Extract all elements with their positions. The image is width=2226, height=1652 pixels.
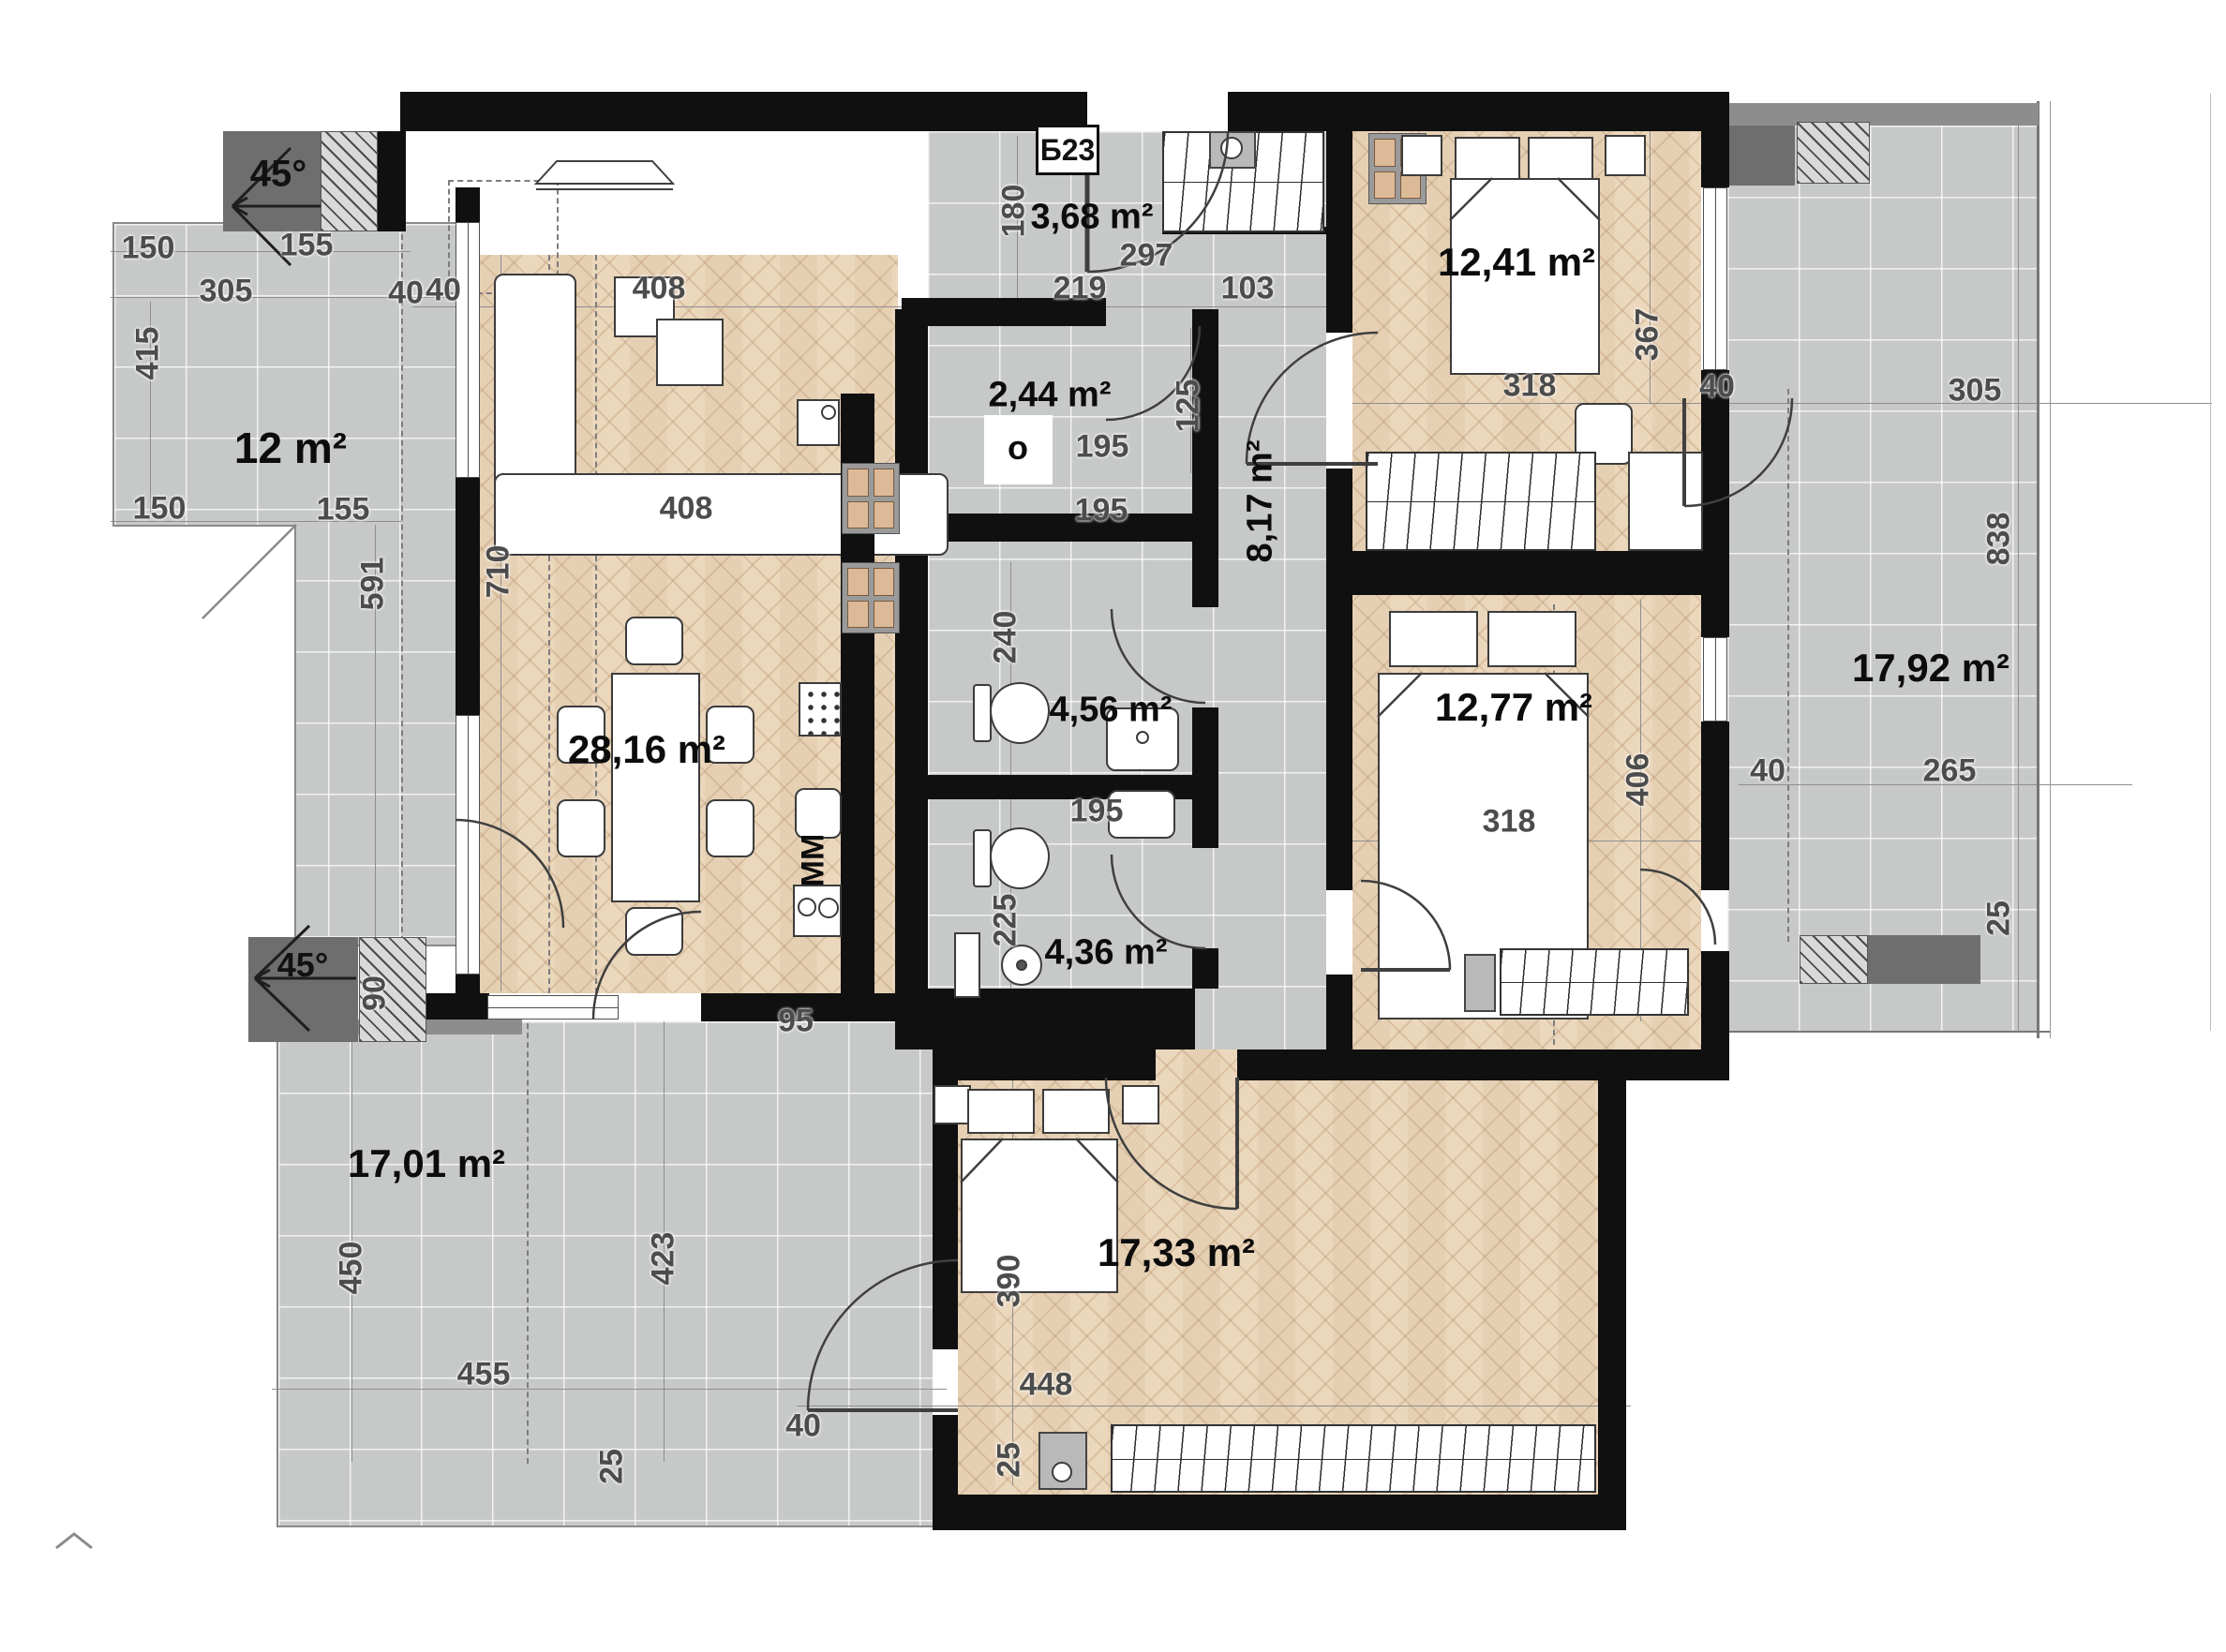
dimension: 103 [1221,271,1275,307]
dimension: 318 [1503,368,1557,405]
window [1703,637,1727,722]
dimension: 305 [200,274,253,310]
wardrobe [1366,452,1596,551]
dashed-line [527,1023,529,1464]
dimension: 225 [988,894,1024,947]
wall-segment [933,1495,1626,1530]
dimension: 195 [1076,429,1129,466]
wardrobe [1111,1424,1596,1493]
dimension: 240 [988,611,1024,664]
wall-segment [1352,1049,1729,1080]
bed [961,1139,1118,1293]
wall-segment [1228,92,1729,131]
pillow [1042,1089,1110,1134]
wall-segment [1326,131,1352,333]
vent-shaft [842,463,900,534]
dimension: 367 [1630,308,1666,362]
dim-line [1352,403,2212,404]
coffee-table [656,319,724,386]
toilet-tank [973,829,992,887]
dimension: 125 [1171,380,1207,433]
floor-plan: 12 m² 28,16 m² 2,44 m² 3,68 m² 8,17 m² 4… [0,0,2226,1652]
cabinet [1464,954,1496,1012]
chair [557,799,605,857]
dimension: 40 [1699,369,1735,406]
dimension: 150 [133,491,187,528]
room-area-label: 2,44 m² [989,376,1112,416]
room-area-label: 17,92 m² [1852,646,2009,691]
dimension: 219 [1053,271,1107,307]
hatched-wall [1800,935,1868,984]
wall-segment [1701,370,1729,637]
dimension: 195 [1070,794,1124,830]
shower-box [954,932,980,998]
window [456,222,480,478]
dimension: 318 [1483,804,1536,841]
wall-segment [1237,1049,1352,1080]
wardrobe [1500,948,1689,1016]
building-notch [112,525,296,946]
nightstand [1605,135,1646,176]
wall-segment [1701,131,1729,187]
dim-line [2018,108,2019,1031]
chair [625,617,683,665]
window [456,715,480,975]
dimension: 155 [280,228,334,264]
apartment-id-badge: Б23 [1036,125,1099,175]
roof-angle-label: 45° [277,945,328,985]
wall-segment [1326,469,1352,890]
dashed-line [401,225,403,942]
sink-drain [1136,731,1149,744]
dimension: 40 [785,1408,821,1445]
boiler-label: o [1008,428,1028,468]
room-area-label: 12,41 m² [1438,240,1595,285]
cabinet-knob [1052,1462,1072,1482]
dimension: 591 [355,558,392,611]
dining-table [611,673,700,902]
wall-segment [1598,1049,1626,1530]
burner [798,898,816,916]
dimension: 406 [1621,753,1657,807]
burner [818,898,839,918]
apartment-id: Б23 [1040,133,1096,168]
room-area-label: 17,01 m² [348,1141,505,1186]
dimension: 40 [388,275,424,312]
dimension: 40 [426,273,461,309]
parapet-wall [1729,103,2039,126]
dimension: 25 [992,1442,1028,1478]
desk [1628,452,1703,551]
dimension: 155 [317,492,370,528]
pillow [967,1089,1035,1134]
nightstand [1401,135,1442,176]
pillow [1389,611,1478,667]
dimension: 25 [1981,900,2018,936]
dim-line [797,1406,1631,1406]
wall-segment [1701,722,1729,890]
dimension: 838 [1981,513,2018,566]
dimension: 408 [660,491,713,528]
dimension: 455 [457,1357,511,1393]
terrace-right-rail [2050,101,2051,1038]
dimension: 450 [334,1242,370,1295]
corner-block [1729,126,1795,186]
faucet [821,405,836,420]
room-area-label: 3,68 m² [1031,198,1154,238]
dimension: 305 [1949,373,2002,409]
washing-machine-label: MM [796,834,832,887]
room-area-label: 12,77 m² [1435,685,1592,730]
wall-segment [1352,551,1729,595]
room-area-label: 8,17 m² [1241,440,1281,563]
dimension: 95 [778,1004,814,1040]
wall-segment [933,1049,1156,1080]
dimension: 710 [481,545,517,599]
room-area-label: 17,33 m² [1098,1230,1255,1275]
room-area-label: 4,56 m² [1050,691,1173,731]
dimension: 25 [594,1449,631,1484]
dimension: 423 [646,1232,682,1286]
wall-segment [1192,309,1218,607]
dimension: 265 [1923,753,1977,790]
room-area-label: 4,36 m² [1045,933,1168,974]
dimension: 408 [633,271,686,307]
window [1703,187,1727,370]
corner-block [1868,935,1980,984]
dim-line [1650,131,1651,403]
kitchen-sink-2 [795,788,842,839]
dimension: 150 [122,231,175,267]
terrace-right-floor [1727,126,2037,1031]
nightstand [1122,1085,1159,1124]
wall-segment [1701,951,1729,1080]
dimension: 415 [130,327,167,380]
wall-segment [378,131,406,231]
roof-angle-label: 45° [250,154,307,196]
chair [706,799,754,857]
dashed-line [1787,389,1789,942]
dimension: 448 [1020,1367,1073,1404]
hatched-wall [321,131,378,231]
wall-segment [933,1415,958,1495]
dishwasher [799,682,842,737]
wall-segment [456,478,480,715]
room-area-label: 12 m² [234,423,347,473]
room-area-label: 28,16 m² [568,727,725,772]
nightstand [934,1085,971,1124]
wall-segment [400,92,1087,131]
chair [625,907,683,956]
terrace-right-rail [1727,1031,2050,1033]
terrace-right-rail [2037,101,2039,1038]
dimension: 90 [357,975,394,1011]
shower-head-center [1016,960,1027,971]
dimension: 40 [1750,753,1785,790]
wall-segment [456,187,480,222]
window [487,995,619,1019]
dimension: 297 [1120,238,1173,275]
dimension: 180 [996,185,1033,238]
wall-segment [895,989,1195,1049]
toilet-tank [973,684,992,742]
dimension: 195 [1075,493,1128,529]
closet-sink-bowl [1220,137,1243,159]
wall-segment [895,309,928,996]
wall-segment [1192,948,1218,989]
dim-line [272,1389,947,1390]
outer-contour-line [2210,94,2211,1031]
pillow [1487,611,1576,667]
wall-segment [1192,707,1218,848]
dimension: 390 [992,1255,1028,1308]
dashed-line [595,255,597,993]
north-chevron [56,1534,92,1548]
hatched-wall [1797,122,1870,184]
vent-shaft [842,562,900,633]
